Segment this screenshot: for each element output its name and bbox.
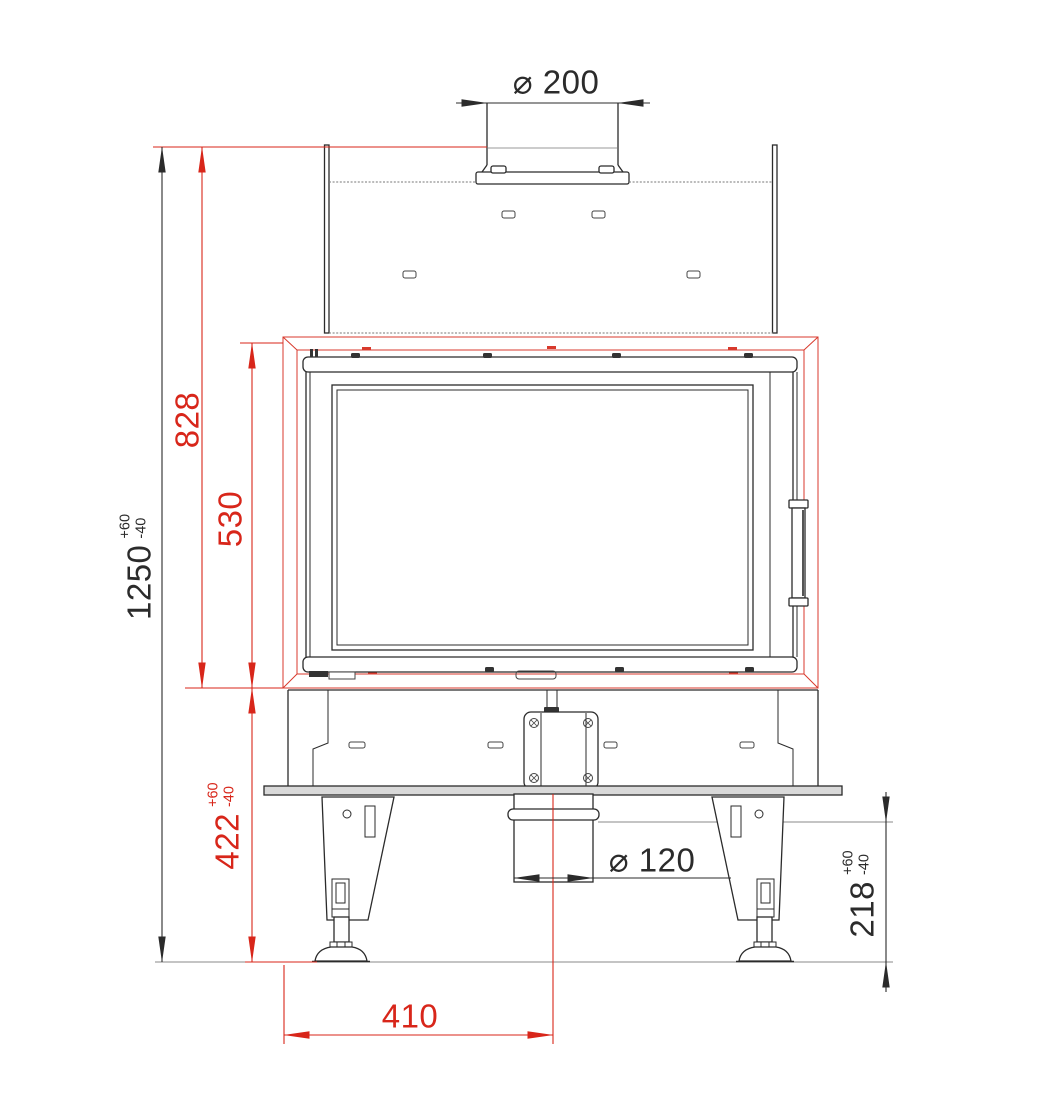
frame-keepers [351, 353, 754, 672]
dim-value: 410 [382, 1000, 439, 1033]
keeper [744, 353, 753, 358]
door-latch [309, 671, 328, 677]
lower-casing [288, 690, 818, 791]
door-bottom-bar [303, 657, 797, 672]
flange-clip-right [599, 166, 614, 173]
leg-slot [365, 806, 375, 837]
frame-tick [728, 347, 737, 350]
vent-slot [687, 271, 700, 278]
frame-tick [362, 347, 371, 350]
dim-label-body-height: 828 [171, 392, 204, 449]
tol-plus: +60 [119, 514, 135, 539]
vent-slot [488, 742, 503, 748]
dim-label-air-intake-height: 218 +60 -40 [846, 850, 879, 937]
door-top-bar [303, 357, 797, 372]
dim-label-flue-diameter: ⌀ 200 [513, 66, 600, 99]
vent-slot [403, 271, 416, 278]
foot-stem [757, 917, 772, 942]
glass-frame-outer [332, 385, 753, 650]
dim-value: 530 [214, 491, 247, 548]
tol-minus: -40 [857, 850, 873, 875]
vent-slot [592, 211, 605, 218]
leveler-bolt [336, 883, 345, 903]
door-handle [789, 500, 808, 606]
tol-plus: +60 [207, 782, 223, 807]
frame-miter-bl [283, 674, 297, 688]
dim-tolerance: +60 -40 [119, 514, 150, 539]
frame-miter-tr [804, 337, 818, 350]
leg-hole [343, 810, 351, 818]
side-rail-right [773, 145, 778, 333]
foot-stem [334, 917, 349, 942]
dim-tolerance: +60 -40 [842, 850, 873, 875]
flue-collar [476, 103, 629, 184]
leg-slot [731, 806, 741, 837]
technical-drawing-canvas: ⌀ 200 1250 +60 -40 828 530 422 +60 -40 2… [0, 0, 1040, 1120]
side-rail-left [325, 145, 330, 333]
dim-value: 422 [211, 813, 244, 870]
foot-dome [315, 947, 367, 961]
flange-clip-left [491, 166, 506, 173]
vent-slot [604, 742, 617, 748]
keeper [485, 667, 494, 672]
foot-dome [739, 947, 791, 961]
dim-value: ⌀ 200 [513, 66, 600, 99]
dim-label-air-intake-diameter: ⌀ 120 [609, 844, 696, 877]
handle-cap-bottom [789, 598, 808, 606]
frame-tick [547, 346, 556, 349]
dim-label-air-intake-offset: 410 [382, 1000, 439, 1033]
flue-flare-right [618, 165, 623, 172]
frame-miter-br [804, 674, 818, 688]
junction-box [524, 690, 598, 791]
hinge-pin [310, 349, 313, 357]
flue-flare-left [482, 165, 487, 172]
glass-door [303, 349, 808, 679]
dim-label-total-height: 1250 +60 -40 [123, 514, 156, 620]
dim-tolerance: +60 -40 [207, 782, 238, 807]
leg-bracket-left [313, 690, 328, 787]
dim-value: ⌀ 120 [609, 844, 696, 877]
right-leg [712, 797, 794, 962]
keeper [615, 667, 624, 672]
keeper [745, 667, 754, 672]
glass-frame-inner [337, 390, 748, 645]
handle-cap-top [789, 500, 808, 508]
left-leg [312, 797, 394, 962]
flue-flange [476, 172, 629, 184]
keeper [612, 353, 621, 358]
frame-inner [297, 350, 804, 674]
dim-label-door-frame-height: 530 [214, 491, 247, 548]
vent-slot [349, 742, 365, 748]
leg-bracket-right [778, 690, 793, 787]
dim-value: 828 [171, 392, 204, 449]
leveler-bolt [761, 883, 770, 903]
tol-minus: -40 [134, 514, 150, 539]
leg-hole [755, 810, 763, 818]
keeper [351, 353, 360, 358]
keeper [483, 353, 492, 358]
vent-slot [502, 211, 515, 218]
tol-minus: -40 [222, 782, 238, 807]
dim-value: 1250 [123, 545, 156, 620]
door-latch-plate [329, 672, 355, 679]
frame-miter-tl [283, 337, 297, 350]
vent-slot [740, 742, 754, 748]
dim-value: 218 [846, 881, 879, 938]
tol-plus: +60 [842, 850, 858, 875]
dim-label-base-section-height: 422 +60 -40 [211, 782, 244, 869]
hinge-pin [315, 349, 318, 357]
